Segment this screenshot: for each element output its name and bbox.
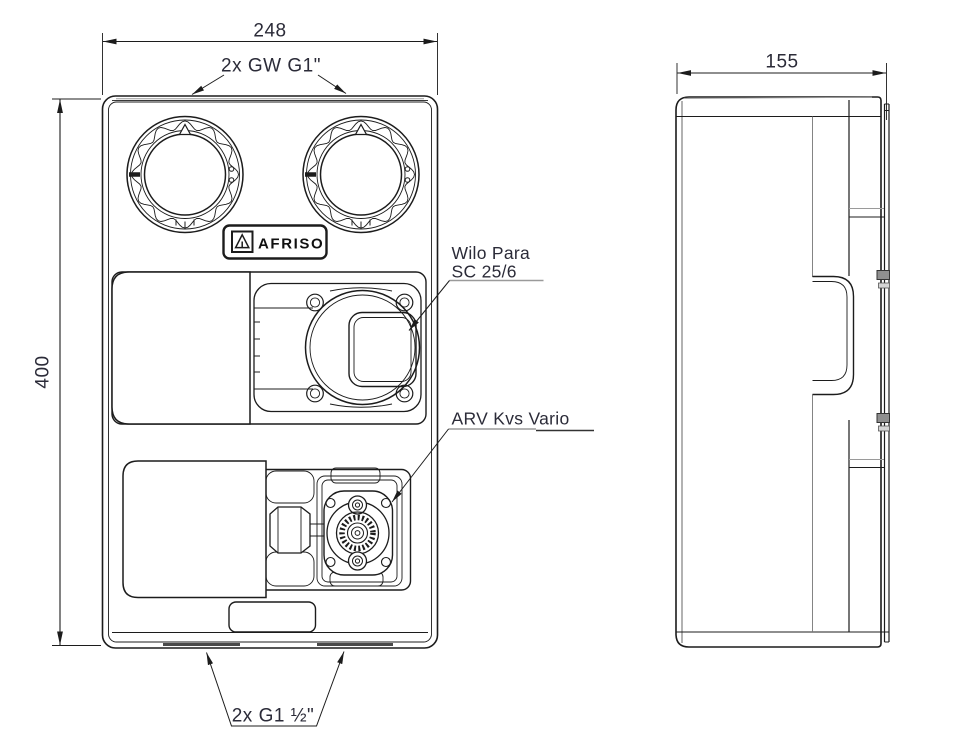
side-view [676, 97, 890, 647]
callout-pump: Wilo Para SC 25/6 [409, 243, 544, 331]
thermometer-dial-right [303, 117, 419, 233]
front-view: AFRISO [103, 96, 438, 648]
technical-drawing-page: AFRISO [0, 0, 972, 756]
dimension-side-depth: 155 [677, 52, 887, 121]
top-connections-label: 2x GW G1" [221, 56, 321, 77]
dial-knurled-ring [308, 121, 415, 228]
bottom-connections-label: 2x G1 ½" [232, 706, 315, 727]
mounting-tab [877, 414, 890, 423]
union-nut [270, 507, 310, 553]
pump-label-line1: Wilo Para [452, 243, 531, 263]
thermometer-dial-left [127, 117, 243, 233]
callout-top-connections: 2x GW G1" [192, 56, 346, 95]
valve-section [123, 461, 411, 598]
logo-text: AFRISO [258, 236, 324, 253]
side-housing-outline [676, 97, 881, 647]
pump-head [306, 291, 420, 405]
pump-section [112, 272, 426, 424]
pump-motor-body [254, 308, 313, 389]
dial-pointer-icon [180, 125, 191, 135]
dial-pointer-icon [356, 125, 367, 135]
mounting-tab [877, 271, 890, 280]
dimension-drawing: AFRISO [0, 0, 972, 756]
dim-depth-value: 155 [765, 52, 798, 73]
wall-mounting-plate [877, 104, 890, 642]
insulation-cover-lower [123, 461, 266, 598]
dimension-front-height: 400 [33, 99, 102, 646]
pump-display [349, 313, 416, 387]
dim-width-value: 248 [253, 21, 286, 42]
balancing-valve [324, 491, 393, 575]
pump-label-line2: SC 25/6 [452, 262, 517, 282]
dial-knurled-ring [132, 121, 239, 228]
dim-height-value: 400 [33, 355, 54, 388]
nameplate [229, 602, 316, 632]
insulation-cover-upper [112, 272, 250, 424]
afriso-logo: AFRISO [224, 226, 327, 259]
valve-label: ARV Kvs Vario [452, 409, 570, 429]
callout-bottom-connections: 2x G1 ½" [207, 652, 345, 727]
